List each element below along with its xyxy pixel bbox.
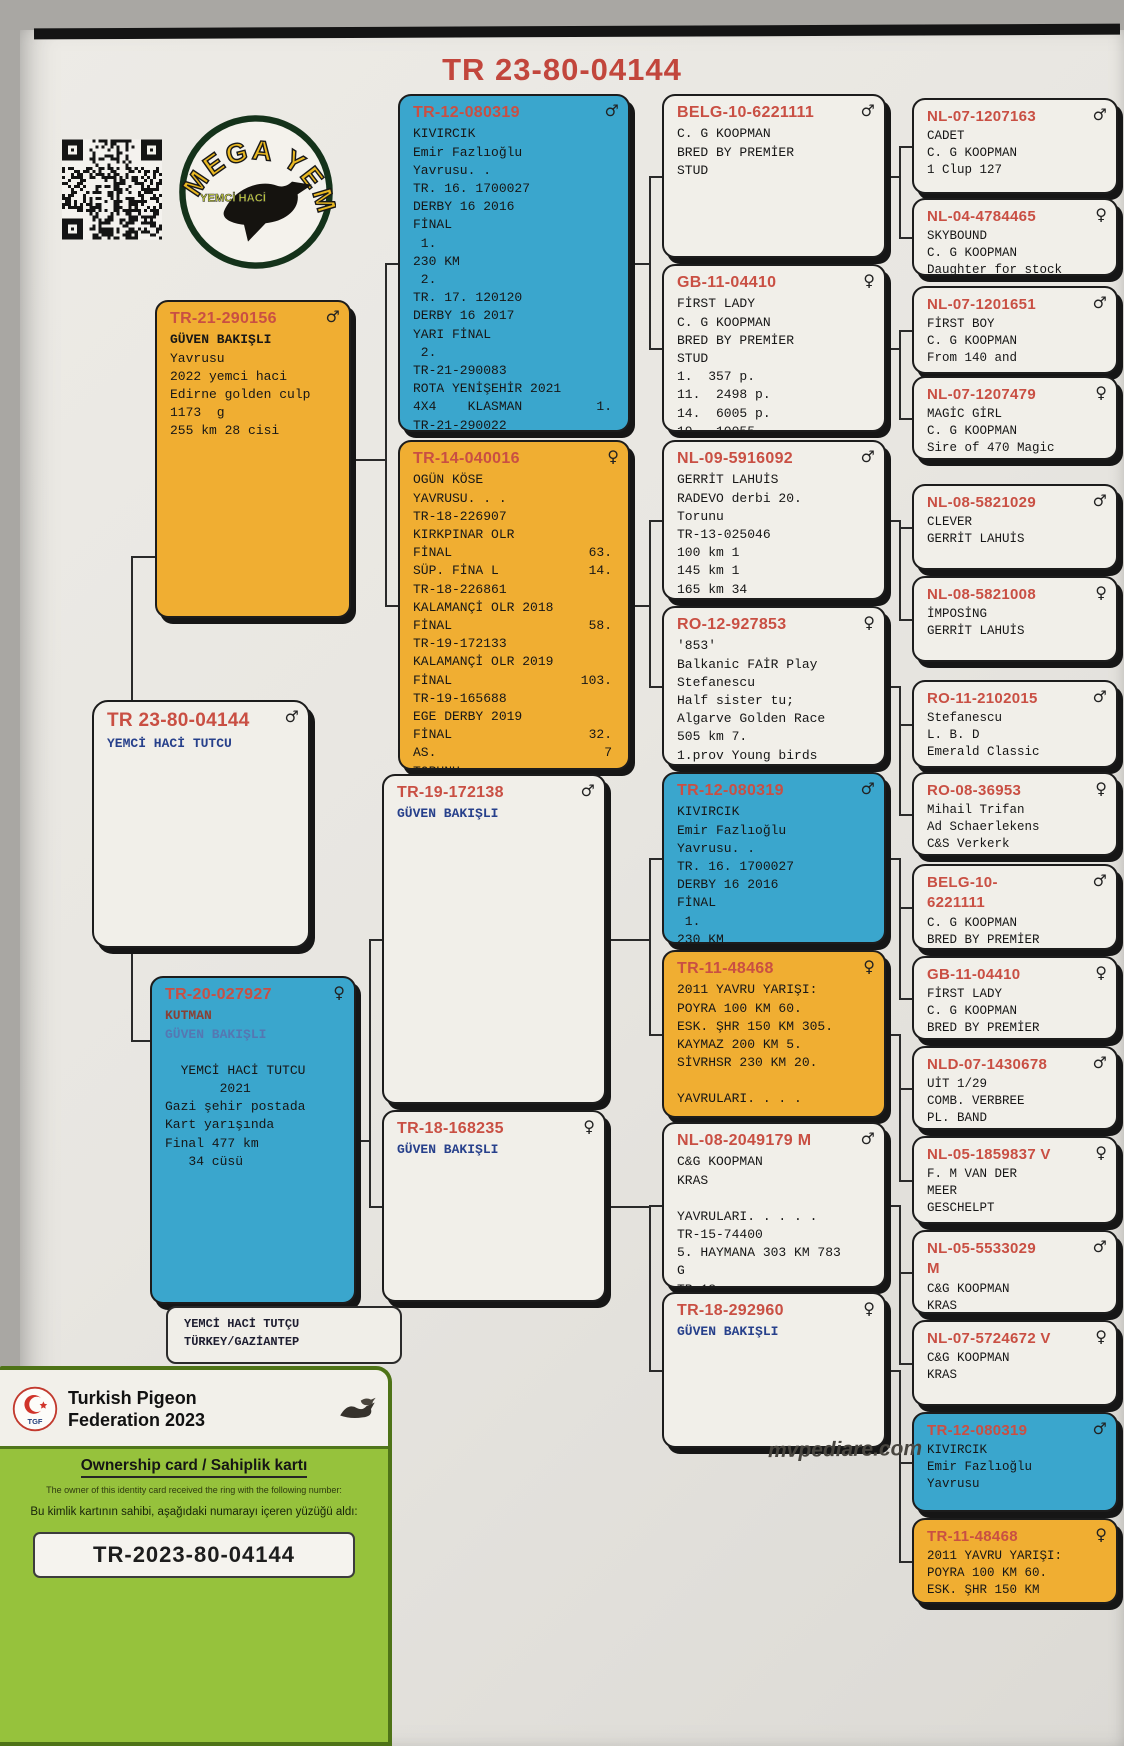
male-symbol-icon: ♂ bbox=[1093, 1055, 1107, 1071]
connector-line bbox=[899, 814, 912, 816]
federation-title-line2: Federation 2023 bbox=[68, 1409, 326, 1432]
ring-number: TR-12-080319 bbox=[677, 782, 874, 800]
female-symbol-icon: ♀ bbox=[333, 985, 345, 1001]
connector-line bbox=[899, 1205, 901, 1363]
pedigree-line: FİNAL103. bbox=[413, 672, 618, 690]
pedigree-line: GÜVEN BAKIŞLI bbox=[165, 1026, 344, 1044]
connector-line bbox=[899, 907, 912, 909]
pedigree-line: C&G KOOPMAN bbox=[927, 1281, 1106, 1298]
pedigree-box-b13: TR-11-48468♀2011 YAVRU YARIŞI:POYRA 100 … bbox=[662, 950, 886, 1118]
mega-yem-logo: MEGA YEM YEMCİ HACİ bbox=[176, 112, 336, 272]
female-symbol-icon: ♀ bbox=[863, 615, 875, 631]
pedigree-line: GÜVEN BAKIŞLI bbox=[677, 1323, 874, 1341]
pedigree-box-b14: NL-08-2049179 M♂C&G KOOPMANKRASYAVRULARI… bbox=[662, 1122, 886, 1288]
pedigree-line: ESK. ŞHR 150 KM bbox=[927, 1582, 1106, 1599]
pedigree-line: GÜVEN BAKIŞLI bbox=[170, 331, 339, 349]
female-symbol-icon: ♀ bbox=[583, 1119, 595, 1135]
pedigree-line: L. B. D bbox=[927, 727, 1106, 744]
pedigree-line: 34 cüsü bbox=[165, 1153, 344, 1171]
ring-number: TR-18-292960 bbox=[677, 1302, 874, 1320]
pedigree-line: Emir Fazlıoğlu bbox=[927, 1459, 1106, 1476]
pedigree-line: 19. 10055 bbox=[677, 423, 874, 432]
connector-line bbox=[899, 1272, 912, 1274]
pedigree-line: 100 km 1 bbox=[677, 544, 874, 562]
connector-line bbox=[899, 330, 901, 418]
pedigree-box-b25: GB-11-04410♀FİRST LADYC. G KOOPMANBRED B… bbox=[912, 956, 1118, 1040]
pedigree-line: YEMCİ HACİ TUTCU bbox=[165, 1062, 344, 1080]
pedigree-line: 2011 YAVRU YARIŞI: bbox=[927, 1548, 1106, 1565]
pedigree-line: TR-19-165688 bbox=[413, 690, 618, 708]
connector-line bbox=[899, 527, 912, 529]
connector-line bbox=[886, 176, 899, 178]
pedigree-box-b29: NL-07-5724672 V♀C&G KOOPMANKRAS bbox=[912, 1320, 1118, 1406]
pedigree-line: YAVRULARI. . . . . bbox=[677, 1208, 874, 1226]
pedigree-line: CADET bbox=[927, 128, 1106, 145]
connector-line bbox=[649, 520, 662, 522]
ring-number: NL-07-1207163 bbox=[927, 108, 1106, 125]
pedigree-line: 230 KM bbox=[413, 253, 618, 271]
connector-line bbox=[649, 1370, 662, 1372]
connector-line bbox=[630, 605, 649, 607]
pedigree-line: FİRST BOY bbox=[927, 316, 1106, 333]
pedigree-line: 1. bbox=[413, 235, 618, 253]
connector-line bbox=[649, 1205, 662, 1207]
connector-line bbox=[649, 348, 662, 350]
pedigree-line: Torunu bbox=[677, 508, 874, 526]
pedigree-line: C. G KOOPMAN bbox=[927, 1003, 1106, 1020]
connector-line bbox=[131, 556, 155, 558]
pedigree-line: FİNAL32. bbox=[413, 726, 618, 744]
pedigree-line: 1. 357 p. bbox=[677, 368, 874, 386]
pedigree-box-b9: GB-11-04410♀FİRST LADYC. G KOOPMANBRED B… bbox=[662, 264, 886, 432]
pedigree-line: KUTMAN bbox=[165, 1007, 344, 1025]
pedigree-line: 14. 6005 p. bbox=[677, 405, 874, 423]
pedigree-box-b18: NL-07-1201651♂FİRST BOYC. G KOOPMANFrom … bbox=[912, 286, 1118, 374]
pedigree-box-b22: RO-11-2102015♂StefanescuL. B. DEmerald C… bbox=[912, 680, 1118, 768]
pedigree-box-b20: NL-08-5821029♂CLEVERGERRİT LAHUİS bbox=[912, 484, 1118, 570]
pedigree-line: SKYBOUND bbox=[927, 228, 1106, 245]
ring-number: NLD-07-1430678 bbox=[927, 1056, 1106, 1073]
male-symbol-icon: ♂ bbox=[605, 103, 619, 119]
connector-line bbox=[886, 348, 899, 350]
connector-line bbox=[899, 418, 912, 420]
pedigree-line: KRAS bbox=[677, 1172, 874, 1190]
connector-line bbox=[886, 1205, 899, 1207]
pedigree-box-b28: NL-05-5533029M♂C&G KOOPMANKRAS bbox=[912, 1230, 1118, 1314]
pedigree-line: C&G KOOPMAN bbox=[677, 1153, 874, 1171]
pedigree-line: TR-21-290083 bbox=[413, 362, 618, 380]
male-symbol-icon: ♂ bbox=[1093, 689, 1107, 705]
pedigree-box-b3: TR-20-027927♀KUTMANGÜVEN BAKIŞLI YEMCİ H… bbox=[150, 976, 356, 1304]
male-symbol-icon: ♂ bbox=[1093, 1239, 1107, 1255]
ring-number: NL-05-1859837 V bbox=[927, 1146, 1106, 1163]
pedigree-box-b24: BELG-10-6221111♂C. G KOOPMANBRED BY PREM… bbox=[912, 864, 1118, 950]
pedigree-line: TR-15-74400 bbox=[677, 1226, 874, 1244]
connector-line bbox=[899, 1561, 912, 1563]
connector-line bbox=[649, 176, 651, 348]
pedigree-line: TR-18-226907 bbox=[413, 508, 618, 526]
pedigree-line: KAYMAZ 200 KM 5. bbox=[677, 1036, 874, 1054]
male-symbol-icon: ♂ bbox=[581, 783, 595, 799]
pedigree-box-b12: TR-12-080319♂KIVIRCIKEmir FazlıoğluYavru… bbox=[662, 772, 886, 944]
federation-card: TGF Turkish Pigeon Federation 2023 Owner… bbox=[0, 1366, 392, 1746]
connector-line bbox=[899, 520, 901, 619]
ring-number: NL-05-5533029 bbox=[927, 1240, 1106, 1257]
pedigree-line: Ad Schaerlekens bbox=[927, 819, 1106, 836]
pedigree-line: TR-13-025046 bbox=[677, 526, 874, 544]
pedigree-line: 2022 yemci haci bbox=[170, 368, 339, 386]
pedigree-line: BRED BY PREMİER bbox=[927, 932, 1106, 949]
owner-name: YEMCİ HACİ TUTÇU bbox=[184, 1316, 394, 1334]
connector-line bbox=[899, 330, 912, 332]
pedigree-line: Sire of 470 Magic bbox=[927, 440, 1106, 457]
pedigree-line: TR-18-... bbox=[677, 1281, 874, 1288]
male-symbol-icon: ♂ bbox=[285, 709, 299, 725]
pedigree-line: 230 KM bbox=[677, 931, 874, 944]
pedigree-line: MEER bbox=[927, 1183, 1106, 1200]
pedigree-line: From 140 and bbox=[927, 350, 1106, 367]
pedigree-line: MAGİC GİRL bbox=[927, 406, 1106, 423]
male-symbol-icon: ♂ bbox=[1093, 1421, 1107, 1437]
female-symbol-icon: ♀ bbox=[863, 273, 875, 289]
pedigree-line: Emerald Classic bbox=[927, 744, 1106, 761]
pedigree-line: Final 477 km bbox=[165, 1135, 344, 1153]
pedigree-line: GÜVEN BAKIŞLI bbox=[397, 1141, 594, 1159]
pedigree-line: KALAMANÇİ OLR 2019 bbox=[413, 653, 618, 671]
ring-number: BELG-10-6221111 bbox=[677, 104, 874, 122]
pedigree-box-b5: TR-14-040016♀OGÜN KÖSEYAVRUSU. . .TR-18-… bbox=[398, 440, 630, 770]
connector-line bbox=[649, 1034, 662, 1036]
logo-sub-text: YEMCİ HACİ bbox=[200, 192, 266, 205]
federation-card-header: TGF Turkish Pigeon Federation 2023 bbox=[0, 1370, 388, 1449]
pedigree-line: EGE DERBY 2019 bbox=[413, 708, 618, 726]
pedigree-line: 2022 bbox=[677, 765, 874, 766]
pedigree-line: G bbox=[677, 1262, 874, 1280]
pedigree-line bbox=[677, 1072, 874, 1090]
pedigree-line: 2. bbox=[413, 271, 618, 289]
ring-number: NL-08-5821008 bbox=[927, 586, 1106, 603]
pedigree-line: GESCHELPT bbox=[927, 1200, 1106, 1217]
pedigree-line: POYRA 100 KM 60. bbox=[927, 1565, 1106, 1582]
connector-line bbox=[899, 1370, 901, 1561]
ring-number: GB-11-04410 bbox=[927, 966, 1106, 983]
female-symbol-icon: ♀ bbox=[1095, 585, 1107, 601]
pedigree-line: BRED BY PREMİER bbox=[677, 144, 874, 162]
federation-title-line1: Turkish Pigeon bbox=[68, 1387, 326, 1410]
pedigree-line: PL. BAND bbox=[927, 1110, 1106, 1127]
connector-line bbox=[899, 686, 901, 814]
female-symbol-icon: ♀ bbox=[1095, 1527, 1107, 1543]
ring-number: TR-12-080319 bbox=[927, 1422, 1106, 1439]
male-symbol-icon: ♂ bbox=[1093, 873, 1107, 889]
pedigree-line: C. G KOOPMAN bbox=[677, 125, 874, 143]
pedigree-line: FİNAL bbox=[413, 216, 618, 234]
pedigree-line: TR-21-290022 bbox=[413, 417, 618, 432]
connector-line bbox=[131, 948, 133, 1040]
pedigree-line: KIRKPINAR OLR bbox=[413, 526, 618, 544]
pedigree-line: F. M VAN DER bbox=[927, 1166, 1106, 1183]
pedigree-line: FİNAL58. bbox=[413, 617, 618, 635]
pedigree-box-b26: NLD-07-1430678♂UİT 1/29COMB. VERBREEPL. … bbox=[912, 1046, 1118, 1130]
female-symbol-icon: ♀ bbox=[607, 449, 619, 465]
connector-line bbox=[899, 237, 912, 239]
pedigree-line: CLEVER bbox=[927, 514, 1106, 531]
pedigree-line: 11. 2498 p. bbox=[677, 386, 874, 404]
ring-number: TR-18-168235 bbox=[397, 1120, 594, 1138]
pedigree-line bbox=[677, 1190, 874, 1208]
connector-line bbox=[356, 1140, 369, 1142]
pedigree-line: KRAS bbox=[927, 1298, 1106, 1315]
owner-name-box: YEMCİ HACİ TUTÇU TÜRKEY/GAZİANTEP bbox=[166, 1306, 402, 1364]
pedigree-line: C&S Verkerk bbox=[927, 836, 1106, 853]
pedigree-line: 1. bbox=[677, 913, 874, 931]
pedigree-line: 5. HAYMANA 303 KM 783 bbox=[677, 1244, 874, 1262]
ring-number-line2: M bbox=[927, 1260, 1106, 1277]
connector-line bbox=[899, 724, 912, 726]
tgf-logo-icon: TGF bbox=[12, 1386, 58, 1432]
pedigree-line: Daughter for stock bbox=[927, 262, 1106, 276]
pedigree-line: AS.7 bbox=[413, 744, 618, 762]
connector-line bbox=[886, 520, 899, 522]
connector-line bbox=[899, 1088, 912, 1090]
ring-number: TR-12-080319 bbox=[413, 104, 618, 122]
pedigree-line: 4X4 KLASMAN1. bbox=[413, 398, 618, 416]
pedigree-line: Half sister tu; bbox=[677, 692, 874, 710]
connector-line bbox=[649, 176, 662, 178]
connector-line bbox=[899, 998, 912, 1000]
connector-line bbox=[899, 858, 901, 998]
pedigree-line: GÜVEN BAKIŞLI bbox=[397, 805, 594, 823]
connector-line bbox=[131, 1040, 151, 1042]
pedigree-line: BRED BY PREMİER bbox=[927, 1020, 1106, 1037]
pedigree-line: GERRİT LAHUİS bbox=[927, 623, 1106, 640]
pedigree-line: KALAMANÇİ OLR 2018 bbox=[413, 599, 618, 617]
pedigree-line: İMPOSİNG bbox=[927, 606, 1106, 623]
pedigree-line: KIVIRCIK bbox=[927, 1442, 1106, 1459]
pedigree-line: Emir Fazlıoğlu bbox=[413, 144, 618, 162]
ring-number: GB-11-04410 bbox=[677, 274, 874, 292]
pedigree-box-b15: TR-18-292960♀GÜVEN BAKIŞLI bbox=[662, 1292, 886, 1448]
pedigree-line: Edirne golden culp bbox=[170, 386, 339, 404]
male-symbol-icon: ♂ bbox=[861, 1131, 875, 1147]
pedigree-line: C&G KOOPMAN bbox=[927, 1350, 1106, 1367]
pedigree-line: C. G KOOPMAN bbox=[927, 333, 1106, 350]
pedigree-line: Stefanescu bbox=[677, 674, 874, 692]
male-symbol-icon: ♂ bbox=[861, 781, 875, 797]
pedigree-box-b6: TR-19-172138♂GÜVEN BAKIŞLI bbox=[382, 774, 606, 1104]
card-description-tr: Bu kimlik kartının sahibi, aşağıdaki num… bbox=[14, 1505, 374, 1521]
pedigree-line: TR-18-226861 bbox=[413, 581, 618, 599]
female-symbol-icon: ♀ bbox=[1095, 1145, 1107, 1161]
pedigree-line: TR. 17. 120120 bbox=[413, 289, 618, 307]
website-watermark: mvpediare.com bbox=[768, 1437, 922, 1463]
connector-line bbox=[369, 939, 371, 1206]
pedigree-box-b10: NL-09-5916092♂GERRİT LAHUİSRADEVO derbi … bbox=[662, 440, 886, 600]
pedigree-line: Algarve Golden Race bbox=[677, 710, 874, 728]
pedigree-box-b21: NL-08-5821008♀İMPOSİNGGERRİT LAHUİS bbox=[912, 576, 1118, 662]
connector-line bbox=[899, 146, 912, 148]
pedigree-line: KRAS bbox=[927, 1367, 1106, 1384]
connector-line bbox=[606, 939, 649, 941]
pedigree-line: OGÜN KÖSE bbox=[413, 471, 618, 489]
pedigree-line: Stefanescu bbox=[927, 710, 1106, 727]
pedigree-box-b23: RO-08-36953♀Mihail TrifanAd Schaerlekens… bbox=[912, 772, 1118, 856]
ring-number: TR-21-290156 bbox=[170, 310, 339, 328]
male-symbol-icon: ♂ bbox=[861, 103, 875, 119]
connector-line bbox=[385, 263, 398, 265]
pedigree-line: Yavrusu bbox=[170, 350, 339, 368]
male-symbol-icon: ♂ bbox=[326, 309, 340, 325]
pedigree-line: 2011 YAVRU YARIŞI: bbox=[677, 981, 874, 999]
connector-line bbox=[886, 686, 899, 688]
pedigree-line: SİVRHSR 230 KM 20. bbox=[677, 1054, 874, 1072]
pedigree-line: C. G KOOPMAN bbox=[677, 314, 874, 332]
pedigree-page: TR 23-80-04144 MEGA YEM YEMCİ HACİ YEMCİ… bbox=[0, 0, 1124, 1746]
male-symbol-icon: ♂ bbox=[1093, 295, 1107, 311]
ring-number: RO-08-36953 bbox=[927, 782, 1106, 799]
pedigree-line: STUD bbox=[677, 162, 874, 180]
ring-number: TR-14-040016 bbox=[413, 450, 618, 468]
pedigree-line: GERRİT LAHUİS bbox=[677, 471, 874, 489]
pedigree-line: C. G KOOPMAN bbox=[927, 145, 1106, 162]
ring-number: RO-11-2102015 bbox=[927, 690, 1106, 707]
pedigree-line: DERBY 16 2016 bbox=[413, 198, 618, 216]
connector-line bbox=[899, 1180, 912, 1182]
pedigree-line: YEMCİ HACİ TUTCU bbox=[107, 735, 298, 753]
connector-line bbox=[649, 858, 662, 860]
connector-line bbox=[899, 1462, 912, 1464]
ring-number-line2: 6221111 bbox=[927, 894, 1106, 911]
pedigree-box-b2: TR 23-80-04144♂YEMCİ HACİ TUTCU bbox=[92, 700, 310, 948]
qr-code-icon bbox=[62, 122, 162, 257]
connector-line bbox=[899, 1034, 901, 1180]
pedigree-box-b16: NL-07-1207163♂CADETC. G KOOPMAN1 Clup 12… bbox=[912, 98, 1118, 194]
pedigree-line: TORUNU bbox=[413, 763, 618, 770]
pedigree-line: Yavrusu. . bbox=[413, 162, 618, 180]
page-title: TR 23-80-04144 bbox=[0, 52, 1124, 88]
pedigree-line: KIVIRCIK bbox=[413, 125, 618, 143]
pedigree-line: C. G KOOPMAN bbox=[927, 245, 1106, 262]
owner-country: TÜRKEY/GAZİANTEP bbox=[184, 1334, 394, 1352]
pedigree-line: FİRST LADY bbox=[927, 986, 1106, 1003]
tgf-logo-text: TGF bbox=[28, 1417, 43, 1426]
ring-number: NL-08-2049179 M bbox=[677, 1132, 874, 1150]
pedigree-line: 145 km 1 bbox=[677, 562, 874, 580]
connector-line bbox=[385, 605, 398, 607]
pedigree-box-b11: RO-12-927853♀'853'Balkanic FAİR PlayStef… bbox=[662, 606, 886, 766]
female-symbol-icon: ♀ bbox=[863, 959, 875, 975]
ring-number: NL-09-5916092 bbox=[677, 450, 874, 468]
pedigree-line: Mihail Trifan bbox=[927, 802, 1106, 819]
pedigree-box-b7: TR-18-168235♀GÜVEN BAKIŞLI bbox=[382, 1110, 606, 1302]
ring-number: NL-08-5821029 bbox=[927, 494, 1106, 511]
pedigree-line: C. G KOOPMAN bbox=[927, 915, 1106, 932]
card-description-en: The owner of this identity card received… bbox=[18, 1485, 370, 1497]
ring-number: TR 23-80-04144 bbox=[107, 710, 298, 732]
female-symbol-icon: ♀ bbox=[1095, 1329, 1107, 1345]
pedigree-line: YAVRUSU. . . bbox=[413, 490, 618, 508]
pedigree-box-b27: NL-05-1859837 V♀F. M VAN DERMEERGESCHELP… bbox=[912, 1136, 1118, 1224]
pedigree-line: 255 km 28 cisi bbox=[170, 422, 339, 440]
pedigree-line: '853' bbox=[677, 637, 874, 655]
connector-line bbox=[369, 1206, 382, 1208]
connector-line bbox=[899, 619, 912, 621]
pedigree-line: TR-19-172133 bbox=[413, 635, 618, 653]
connector-line bbox=[899, 1363, 912, 1365]
male-symbol-icon: ♂ bbox=[1093, 107, 1107, 123]
pedigree-line: Yavrusu bbox=[927, 1476, 1106, 1493]
pedigree-line: GERRİT LAHUİS bbox=[927, 531, 1106, 548]
pedigree-line: Kart yarışında bbox=[165, 1116, 344, 1134]
pedigree-line: 2. bbox=[413, 344, 618, 362]
connector-line bbox=[886, 1370, 899, 1372]
ring-number: TR-19-172138 bbox=[397, 784, 594, 802]
pedigree-box-b19: NL-07-1207479♀MAGİC GİRLC. G KOOPMANSire… bbox=[912, 376, 1118, 460]
connector-line bbox=[886, 1034, 899, 1036]
pedigree-line: 505 km 7. bbox=[677, 728, 874, 746]
pedigree-line: Yavrusu. . bbox=[677, 840, 874, 858]
pedigree-line: YARI FİNAL bbox=[413, 326, 618, 344]
pedigree-line: KIVIRCIK bbox=[677, 803, 874, 821]
pedigree-line: FİNAL bbox=[677, 894, 874, 912]
pedigree-line: COMB. VERBREE bbox=[927, 1093, 1106, 1110]
female-symbol-icon: ♀ bbox=[863, 1301, 875, 1317]
connector-line bbox=[351, 459, 385, 461]
male-symbol-icon: ♂ bbox=[861, 449, 875, 465]
pedigree-line: 345 km 15 bbox=[677, 599, 874, 600]
pedigree-line: POYRA 100 KM 60. bbox=[677, 1000, 874, 1018]
pedigree-line bbox=[165, 1044, 344, 1062]
ring-number: TR-11-48468 bbox=[927, 1528, 1106, 1545]
ring-number: BELG-10- bbox=[927, 874, 1106, 891]
ownership-ring-number: TR-2023-80-04144 bbox=[33, 1532, 355, 1578]
pedigree-line: ESK. ŞHR 150 KM 305. bbox=[677, 1018, 874, 1036]
pedigree-line: TR. 16. 1700027 bbox=[677, 858, 874, 876]
pedigree-box-b8: BELG-10-6221111♂C. G KOOPMANBRED BY PREM… bbox=[662, 94, 886, 258]
pedigree-line: C. G KOOPMAN bbox=[927, 423, 1106, 440]
female-symbol-icon: ♀ bbox=[1095, 965, 1107, 981]
connector-line bbox=[131, 556, 133, 702]
ownership-card-heading: Ownership card / Sahiplik kartı bbox=[0, 1457, 388, 1478]
pedigree-line: Balkanic FAİR Play bbox=[677, 656, 874, 674]
pedigree-line: 1.prov Young birds bbox=[677, 747, 874, 765]
connector-line bbox=[649, 858, 651, 1034]
pedigree-box-b17: NL-04-4784465♀SKYBOUNDC. G KOOPMANDaught… bbox=[912, 198, 1118, 276]
connector-line bbox=[649, 520, 651, 686]
pedigree-line: DERBY 16 2016 bbox=[677, 876, 874, 894]
pedigree-box-b31: TR-11-48468♀2011 YAVRU YARIŞI:POYRA 100 … bbox=[912, 1518, 1118, 1604]
pedigree-line: DERBY 16 2017 bbox=[413, 307, 618, 325]
pedigree-line: RADEVO derbi 20. bbox=[677, 490, 874, 508]
pedigree-line: 2021 bbox=[165, 1080, 344, 1098]
pedigree-line: SÜP. FİNA L14. bbox=[413, 562, 618, 580]
pedigree-box-b30: TR-12-080319♂KIVIRCIKEmir FazlıoğluYavru… bbox=[912, 1412, 1118, 1512]
pedigree-line: UİT 1/29 bbox=[927, 1076, 1106, 1093]
pedigree-line: 1173 g bbox=[170, 404, 339, 422]
connector-line bbox=[649, 686, 662, 688]
pedigree-line: Gazi şehir postada bbox=[165, 1098, 344, 1116]
pedigree-line: YAVRULARI. . . . bbox=[677, 1090, 874, 1108]
pedigree-box-b1: TR-21-290156♂GÜVEN BAKIŞLIYavrusu2022 ye… bbox=[155, 300, 351, 618]
pedigree-box-b4: TR-12-080319♂KIVIRCIKEmir FazlıoğluYavru… bbox=[398, 94, 630, 432]
pedigree-line: Emir Fazlıoğlu bbox=[677, 822, 874, 840]
ring-number: TR-11-48468 bbox=[677, 960, 874, 978]
female-symbol-icon: ♀ bbox=[1095, 207, 1107, 223]
ring-number: NL-04-4784465 bbox=[927, 208, 1106, 225]
pedigree-line: BRED BY PREMİER bbox=[677, 332, 874, 350]
connector-line bbox=[369, 939, 382, 941]
pedigree-line: FİNAL63. bbox=[413, 544, 618, 562]
